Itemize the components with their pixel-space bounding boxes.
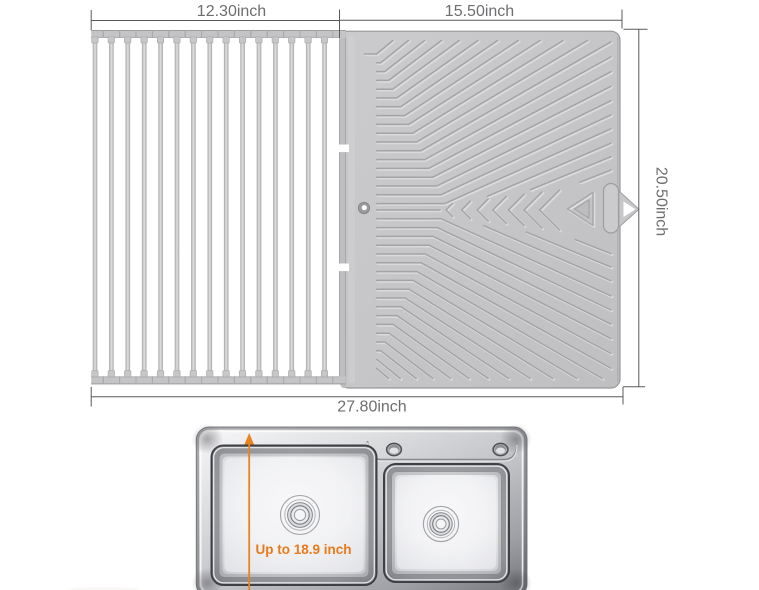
svg-text:Up to 18.9 inch: Up to 18.9 inch [255, 542, 351, 557]
svg-text:27.80inch: 27.80inch [337, 399, 406, 416]
svg-text:12.30inch: 12.30inch [197, 3, 266, 20]
svg-text:15.50inch: 15.50inch [445, 3, 514, 20]
svg-text:20.50inch: 20.50inch [653, 167, 670, 236]
